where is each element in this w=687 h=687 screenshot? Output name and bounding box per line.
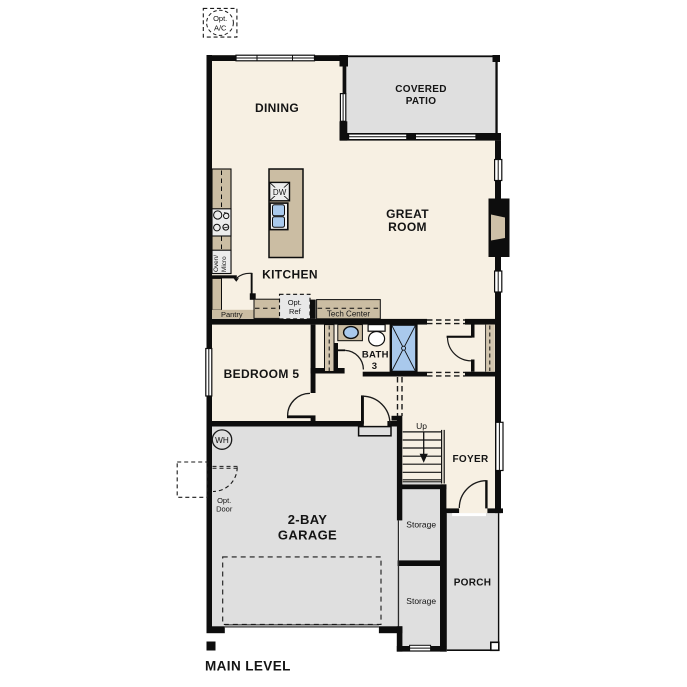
svg-text:Storage: Storage [406,596,436,606]
svg-text:Up: Up [416,421,427,431]
svg-text:DW: DW [273,188,287,197]
svg-text:3: 3 [372,361,378,372]
svg-text:PATIO: PATIO [406,96,437,107]
svg-text:Opt.: Opt. [213,14,227,23]
svg-text:BEDROOM 5: BEDROOM 5 [224,367,300,381]
svg-text:KITCHEN: KITCHEN [262,268,318,282]
svg-text:Tech Center: Tech Center [327,310,370,319]
svg-text:COVERED: COVERED [395,84,447,95]
svg-text:WH: WH [215,436,229,445]
svg-text:PORCH: PORCH [454,578,492,589]
svg-text:FOYER: FOYER [453,454,489,465]
svg-text:Pantry: Pantry [221,310,243,319]
svg-text:ROOM: ROOM [388,220,427,234]
svg-text:2-BAY: 2-BAY [288,512,328,527]
svg-text:GREAT: GREAT [386,207,429,221]
svg-text:DINING: DINING [255,101,299,115]
svg-text:GARAGE: GARAGE [278,528,337,543]
svg-text:Oven/: Oven/ [213,255,220,272]
svg-text:Door: Door [216,505,233,514]
svg-text:BATH: BATH [362,350,389,361]
svg-text:Micro: Micro [221,256,228,272]
svg-text:A/C: A/C [214,24,227,33]
svg-text:Opt.: Opt. [288,298,302,307]
svg-text:MAIN LEVEL: MAIN LEVEL [205,659,291,674]
svg-text:Storage: Storage [406,520,436,530]
svg-text:Ref: Ref [289,307,302,316]
